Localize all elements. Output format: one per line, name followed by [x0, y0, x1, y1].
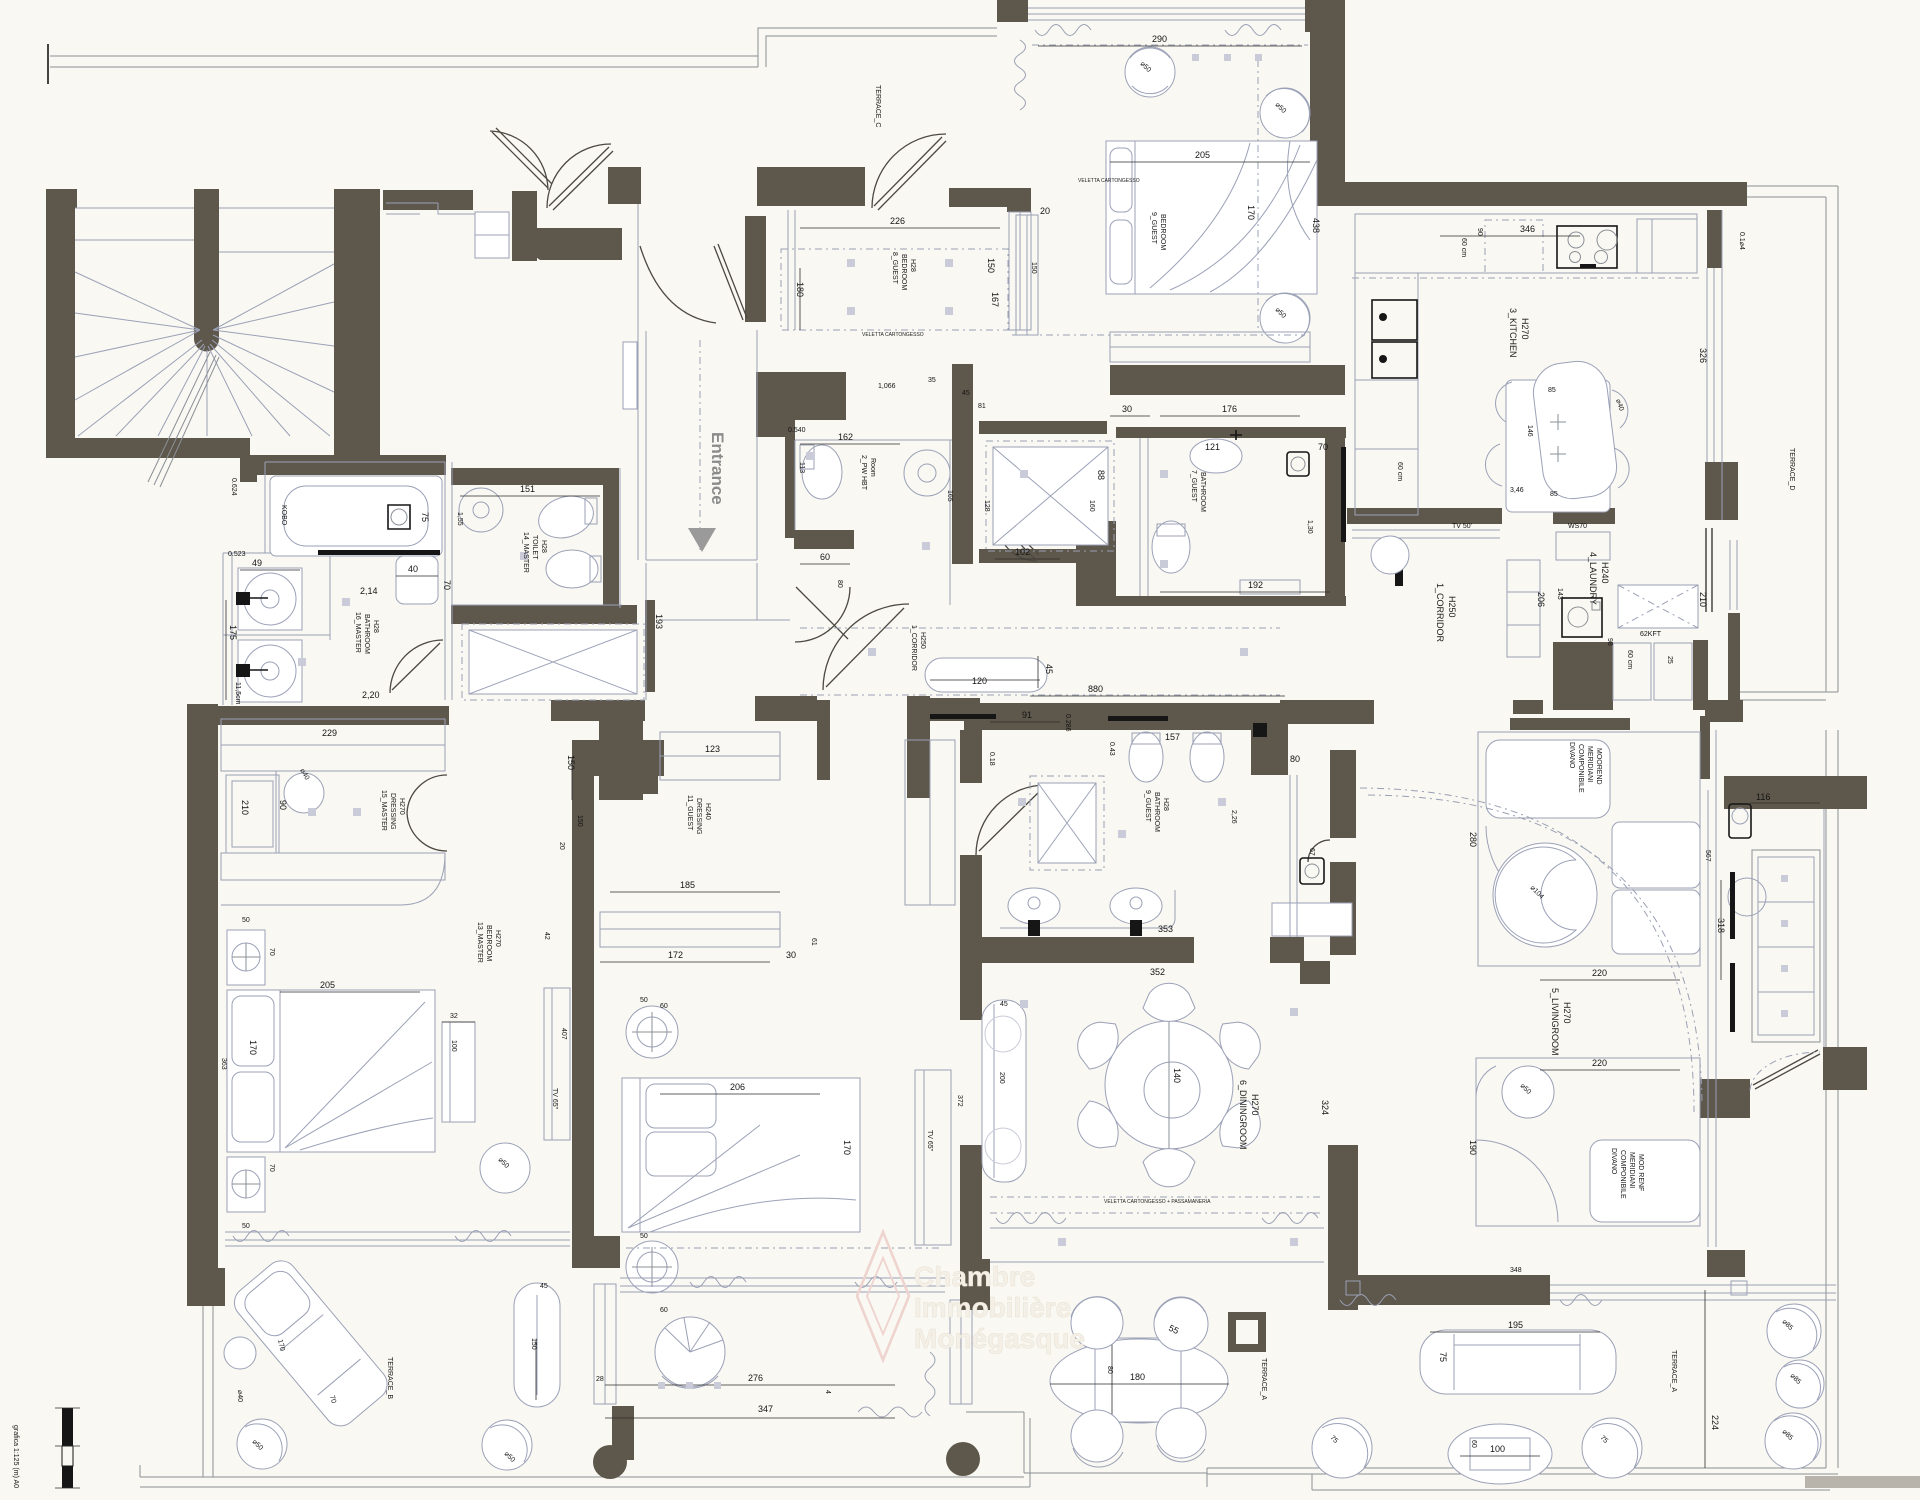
svg-text:BEDROOM: BEDROOM — [485, 925, 492, 961]
svg-text:50: 50 — [640, 1233, 648, 1240]
svg-text:195: 195 — [1508, 1320, 1523, 1330]
svg-text:60: 60 — [660, 1307, 668, 1314]
svg-text:H28: H28 — [1162, 798, 1169, 811]
svg-text:372: 372 — [956, 1095, 963, 1107]
svg-text:H270: H270 — [494, 930, 501, 947]
svg-text:1_CORRIDOR: 1_CORRIDOR — [1435, 583, 1445, 643]
svg-text:H240: H240 — [1600, 562, 1610, 584]
svg-text:100: 100 — [1490, 1444, 1505, 1454]
svg-text:TV 65": TV 65" — [926, 1130, 933, 1152]
svg-text:32: 32 — [450, 1013, 458, 1020]
svg-text:175: 175 — [228, 625, 238, 640]
svg-text:185: 185 — [680, 880, 695, 890]
svg-text:VELETTA CARTONGESSO: VELETTA CARTONGESSO — [1078, 178, 1140, 184]
svg-text:100: 100 — [450, 1040, 457, 1052]
svg-text:172: 172 — [668, 950, 683, 960]
svg-text:42: 42 — [543, 932, 550, 940]
svg-text:Entrance: Entrance — [708, 432, 727, 505]
svg-text:85: 85 — [1548, 387, 1556, 394]
svg-text:15_MASTER: 15_MASTER — [380, 790, 387, 831]
svg-text:352: 352 — [1150, 967, 1165, 977]
svg-text:60 cm: 60 cm — [1396, 462, 1403, 481]
svg-text:9_GUEST: 9_GUEST — [1144, 790, 1151, 823]
svg-text:102: 102 — [1015, 547, 1030, 557]
svg-text:0.286: 0.286 — [1064, 714, 1071, 732]
svg-text:80: 80 — [1106, 1366, 1113, 1374]
svg-text:45: 45 — [1000, 1001, 1008, 1008]
svg-text:BATHROOM: BATHROOM — [1153, 792, 1160, 832]
svg-text:290: 290 — [1152, 34, 1167, 44]
svg-text:143: 143 — [1556, 588, 1563, 600]
svg-text:3_KITCHEN: 3_KITCHEN — [1508, 308, 1518, 358]
svg-text:45: 45 — [540, 1283, 548, 1290]
svg-text:85: 85 — [1550, 491, 1558, 498]
svg-text:Immobilière: Immobilière — [914, 1292, 1071, 1323]
svg-text:BEDROOM: BEDROOM — [1159, 214, 1166, 250]
svg-text:200: 200 — [998, 1072, 1005, 1084]
svg-text:TERRACE_C: TERRACE_C — [874, 85, 881, 127]
svg-text:90: 90 — [1476, 228, 1483, 236]
svg-text:49: 49 — [252, 558, 262, 568]
svg-text:11_GUEST: 11_GUEST — [686, 795, 693, 831]
svg-text:363: 363 — [220, 1058, 227, 1070]
svg-text:grafica 1:125 (m) A0: grafica 1:125 (m) A0 — [12, 1425, 19, 1488]
svg-text:157: 157 — [1165, 732, 1180, 742]
svg-text:4: 4 — [824, 1390, 831, 1394]
svg-text:TERRACE_B: TERRACE_B — [386, 1357, 393, 1399]
svg-text:Monégasque: Monégasque — [914, 1323, 1085, 1354]
svg-text:150: 150 — [576, 815, 583, 827]
svg-text:60 cm: 60 cm — [1626, 650, 1633, 669]
svg-text:DRESSING: DRESSING — [695, 798, 702, 835]
svg-text:206: 206 — [1536, 592, 1546, 607]
svg-text:165: 165 — [946, 490, 953, 502]
svg-text:167: 167 — [990, 292, 1000, 307]
svg-text:70: 70 — [442, 580, 452, 590]
svg-text:116: 116 — [1756, 792, 1770, 802]
svg-text:353: 353 — [1158, 924, 1173, 934]
svg-text:190: 190 — [1468, 1140, 1478, 1155]
svg-text:193: 193 — [654, 614, 664, 629]
svg-text:180: 180 — [1130, 1372, 1145, 1382]
svg-text:28: 28 — [596, 1376, 604, 1383]
svg-text:BATHROOM: BATHROOM — [363, 614, 370, 654]
svg-text:H270: H270 — [1562, 1002, 1572, 1024]
svg-text:2,26: 2,26 — [1230, 810, 1237, 824]
svg-text:6_DININGROOM: 6_DININGROOM — [1238, 1080, 1248, 1150]
svg-text:176: 176 — [1222, 404, 1237, 414]
svg-text:88: 88 — [1096, 470, 1106, 480]
svg-text:151: 151 — [520, 484, 535, 494]
svg-text:192: 192 — [1248, 580, 1263, 590]
svg-text:35: 35 — [928, 377, 936, 384]
svg-text:VELETTA CARTONGESSO: VELETTA CARTONGESSO — [862, 332, 924, 338]
svg-text:DIVANO: DIVANO — [1568, 742, 1575, 769]
svg-text:160: 160 — [1088, 500, 1095, 512]
svg-text:150: 150 — [986, 258, 996, 273]
svg-text:224: 224 — [1710, 1415, 1720, 1430]
svg-text:BATHROOM: BATHROOM — [1199, 472, 1206, 512]
svg-text:67: 67 — [1308, 848, 1315, 856]
svg-text:5_LIVINGROOM: 5_LIVINGROOM — [1550, 988, 1560, 1056]
svg-text:WS70: WS70 — [1568, 523, 1587, 530]
svg-text:1,55: 1,55 — [456, 512, 463, 526]
svg-text:98: 98 — [1606, 638, 1613, 646]
svg-text:DIVANO: DIVANO — [1610, 1148, 1617, 1175]
svg-text:2,14: 2,14 — [360, 586, 378, 596]
svg-text:MOOREND: MOOREND — [1595, 748, 1602, 785]
svg-text:280: 280 — [1468, 832, 1478, 847]
svg-text:H250: H250 — [1447, 596, 1457, 618]
svg-text:16_MASTER: 16_MASTER — [354, 612, 361, 653]
svg-text:0.624: 0.624 — [230, 478, 237, 496]
svg-text:128: 128 — [983, 500, 990, 512]
svg-text:206: 206 — [730, 1082, 745, 1092]
svg-text:123: 123 — [705, 744, 720, 754]
svg-text:75: 75 — [1438, 1352, 1448, 1362]
svg-text:TERRACE_A: TERRACE_A — [1260, 1358, 1267, 1400]
svg-text:70: 70 — [268, 1164, 275, 1172]
svg-text:0.1⌀4: 0.1⌀4 — [1738, 232, 1745, 250]
svg-text:4_LAUNDRY: 4_LAUNDRY — [1588, 552, 1598, 605]
svg-text:150: 150 — [1030, 262, 1037, 274]
svg-text:9_GUEST: 9_GUEST — [1150, 212, 1157, 245]
svg-text:121: 121 — [1205, 442, 1220, 452]
svg-text:COMPONIBILE: COMPONIBILE — [1619, 1150, 1626, 1199]
svg-text:880: 880 — [1088, 684, 1103, 694]
svg-text:30: 30 — [1122, 404, 1132, 414]
svg-text:90: 90 — [278, 800, 288, 810]
svg-text:150: 150 — [566, 755, 576, 770]
svg-text:146: 146 — [1526, 425, 1533, 437]
svg-text:MERIDIANI: MERIDIANI — [1628, 1152, 1635, 1188]
svg-text:70: 70 — [1318, 442, 1328, 452]
svg-text:407: 407 — [560, 1028, 567, 1040]
svg-text:75: 75 — [420, 512, 430, 522]
svg-text:TOILET: TOILET — [531, 535, 538, 560]
svg-text:438: 438 — [1311, 218, 1321, 233]
svg-text:210: 210 — [1698, 592, 1708, 607]
svg-text:MERIDIANI: MERIDIANI — [1586, 746, 1593, 782]
svg-text:TV 50': TV 50' — [1452, 523, 1472, 530]
svg-text:BEDROOM: BEDROOM — [900, 254, 907, 290]
svg-text:567: 567 — [1704, 850, 1711, 862]
svg-text:60: 60 — [1470, 1440, 1477, 1448]
svg-text:80: 80 — [1290, 754, 1300, 764]
svg-text:3,46: 3,46 — [1510, 487, 1524, 494]
svg-text:205: 205 — [320, 980, 335, 990]
svg-text:120: 120 — [972, 676, 987, 686]
svg-text:220: 220 — [1592, 968, 1607, 978]
svg-text:45: 45 — [1044, 664, 1054, 674]
svg-text:30: 30 — [786, 950, 796, 960]
svg-text:TV 65": TV 65" — [551, 1088, 558, 1110]
svg-text:2,20: 2,20 — [362, 690, 380, 700]
svg-text:347: 347 — [758, 1404, 773, 1414]
svg-text:140: 140 — [1172, 1068, 1182, 1083]
svg-text:TERRACE_A: TERRACE_A — [1670, 1350, 1677, 1392]
svg-text:8_GUEST: 8_GUEST — [891, 252, 898, 285]
svg-text:348: 348 — [1510, 1267, 1522, 1274]
svg-text:0.540: 0.540 — [788, 427, 806, 434]
svg-text:50: 50 — [242, 1223, 250, 1230]
svg-text:7_GUEST: 7_GUEST — [1190, 470, 1197, 503]
svg-text:45: 45 — [962, 390, 970, 397]
svg-text:60 cm: 60 cm — [1460, 238, 1467, 257]
svg-text:70: 70 — [268, 948, 275, 956]
svg-text:80: 80 — [836, 580, 843, 588]
svg-text:20: 20 — [558, 842, 565, 850]
svg-text:170: 170 — [1246, 205, 1256, 220]
svg-text:1_CORRIDOR: 1_CORRIDOR — [910, 625, 917, 671]
svg-text:210: 210 — [240, 800, 250, 815]
svg-text:276: 276 — [748, 1373, 763, 1383]
svg-text:0.18: 0.18 — [988, 752, 995, 766]
svg-text:KOBO: KOBO — [280, 505, 287, 526]
svg-text:2_PW HBT: 2_PW HBT — [860, 455, 867, 491]
svg-text:H28: H28 — [540, 540, 547, 553]
svg-text:11,5cm: 11,5cm — [234, 682, 241, 705]
svg-text:113: 113 — [798, 462, 805, 473]
svg-text:50: 50 — [242, 917, 250, 924]
svg-text:40: 40 — [408, 564, 418, 574]
svg-text:⌀40: ⌀40 — [236, 1390, 243, 1402]
svg-text:14_MASTER: 14_MASTER — [522, 532, 529, 573]
svg-text:COMPONIBILE: COMPONIBILE — [1577, 744, 1584, 793]
svg-text:TERRACE_D: TERRACE_D — [1788, 448, 1795, 490]
svg-text:91: 91 — [1022, 710, 1032, 720]
svg-text:60: 60 — [660, 1003, 668, 1010]
svg-text:H28: H28 — [909, 259, 916, 272]
svg-text:H28: H28 — [372, 620, 379, 633]
svg-text:H270: H270 — [1250, 1094, 1260, 1116]
svg-text:220: 220 — [1592, 1058, 1607, 1068]
svg-text:346: 346 — [1520, 224, 1535, 234]
svg-text:162: 162 — [838, 432, 853, 442]
svg-text:0.523: 0.523 — [228, 551, 246, 558]
svg-text:H270: H270 — [398, 798, 405, 815]
svg-text:Chambre: Chambre — [914, 1261, 1035, 1292]
svg-text:1,30: 1,30 — [1306, 520, 1313, 534]
svg-text:170: 170 — [842, 1140, 852, 1155]
svg-text:326: 326 — [1698, 348, 1708, 363]
svg-text:H250: H250 — [919, 632, 926, 649]
svg-text:81: 81 — [978, 403, 986, 410]
svg-text:VELETTA CARTONGESSO + PASSAMAN: VELETTA CARTONGESSO + PASSAMANERIA — [1104, 1199, 1211, 1205]
svg-text:1,066: 1,066 — [878, 383, 896, 390]
svg-text:61: 61 — [810, 938, 817, 946]
svg-text:60: 60 — [820, 552, 830, 562]
svg-text:62KFT: 62KFT — [1640, 631, 1662, 638]
svg-text:205: 205 — [1195, 150, 1210, 160]
svg-text:H240: H240 — [704, 803, 711, 820]
svg-text:0.43: 0.43 — [1108, 742, 1115, 756]
svg-text:170: 170 — [248, 1040, 258, 1055]
svg-text:50: 50 — [640, 997, 648, 1004]
svg-text:226: 226 — [890, 216, 905, 226]
svg-text:MOD RENF: MOD RENF — [1637, 1154, 1644, 1191]
svg-text:Room: Room — [869, 458, 876, 477]
svg-text:H270: H270 — [1520, 318, 1530, 340]
svg-text:229: 229 — [322, 728, 337, 738]
svg-text:13_MASTER: 13_MASTER — [476, 922, 483, 963]
svg-text:DRESSING: DRESSING — [389, 793, 396, 830]
svg-text:324: 324 — [1320, 1100, 1330, 1115]
svg-text:20: 20 — [1040, 206, 1050, 216]
svg-text:25: 25 — [1666, 656, 1673, 664]
